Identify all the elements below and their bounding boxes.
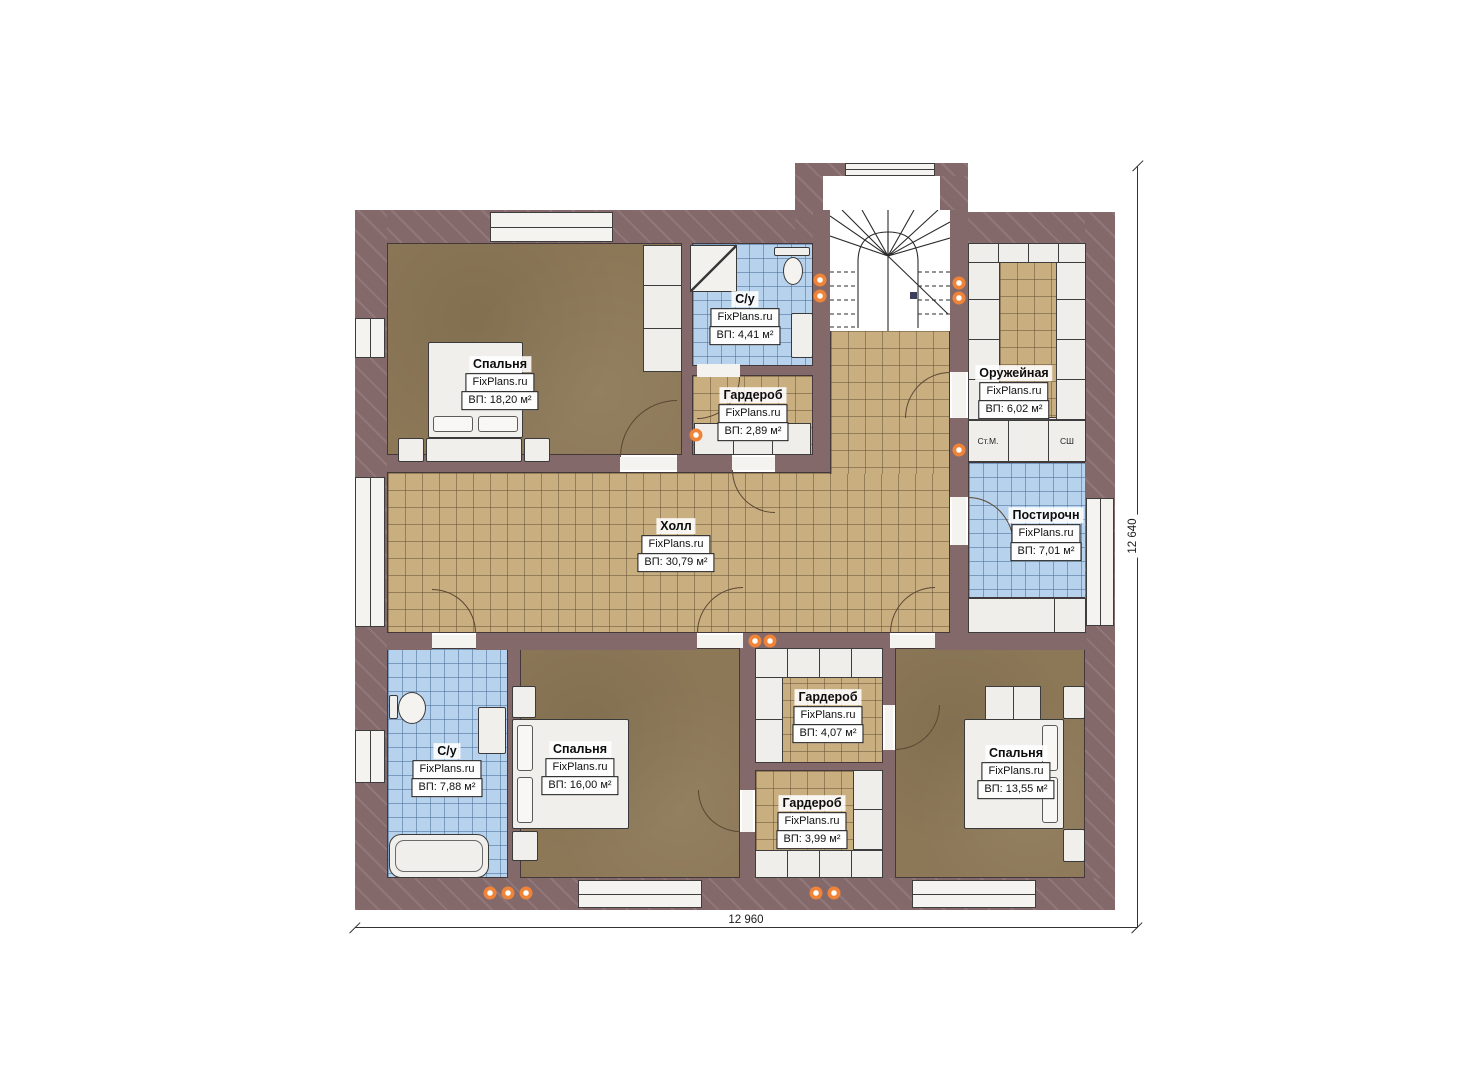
laundry-bottom-cabinet — [968, 598, 1055, 633]
room-name: Гардероб — [794, 689, 861, 705]
downlight — [502, 887, 515, 900]
room-area: ВП: 6,02 м² — [978, 400, 1049, 419]
nightstand — [398, 438, 424, 462]
window-bottom-bedroomBC — [578, 880, 702, 908]
cabinet-armory-top — [968, 243, 1086, 263]
toilet-bowl — [783, 257, 803, 285]
room-name: Холл — [656, 518, 695, 534]
window-left-upper — [355, 318, 385, 358]
room-name: Постирочн — [1009, 507, 1084, 523]
toilet-tank — [774, 247, 810, 256]
nightstand — [512, 831, 538, 861]
room-name: Спальня — [985, 745, 1047, 761]
nightstand — [1063, 686, 1085, 719]
downlight — [764, 635, 777, 648]
room-label-bedroom-bottom-center: Спальня FixPlans.ru ВП: 16,00 м² — [541, 741, 618, 795]
room-name: Спальня — [469, 356, 531, 372]
room-area: ВП: 16,00 м² — [541, 776, 618, 795]
floor-plan-canvas: Спальня FixPlans.ru ВП: 18,20 м² С/у Fix… — [0, 0, 1473, 1080]
room-area: ВП: 18,20 м² — [461, 391, 538, 410]
room-name: С/у — [731, 291, 758, 307]
room-name: Оружейная — [975, 365, 1052, 381]
window-bottom-bedroomBR — [912, 880, 1036, 908]
wall-bedroomTL-bottom-b — [677, 455, 690, 472]
pillow — [433, 416, 473, 432]
door-wardrobe-top — [732, 457, 775, 470]
room-area: ВП: 3,99 м² — [776, 830, 847, 849]
cabinet-armory-right — [1056, 262, 1086, 420]
laundry-mid-cabinet — [1008, 420, 1049, 462]
dimension-height-text: 12 640 — [1127, 514, 1139, 557]
watermark: FixPlans.ru — [545, 758, 614, 777]
door-laundry — [952, 497, 966, 545]
nightstand — [512, 686, 536, 718]
wall-wardrobeTop-bottom-b — [775, 455, 830, 472]
closet-bedroomTL — [643, 245, 682, 372]
wall-bedBC-right-a — [740, 648, 755, 790]
watermark: FixPlans.ru — [718, 404, 787, 423]
watermark: FixPlans.ru — [465, 373, 534, 392]
nightstand — [1063, 829, 1085, 862]
door-wardrobe-upper — [885, 705, 893, 750]
door-wardrobe-lower — [742, 790, 753, 832]
watermark: FixPlans.ru — [641, 535, 710, 554]
room-area: ВП: 4,07 м² — [792, 724, 863, 743]
room-label-bedroom-bottom-right: Спальня FixPlans.ru ВП: 13,55 м² — [977, 745, 1054, 799]
door-bathroom-bottom — [432, 635, 476, 648]
room-label-bedroom-top-left: Спальня FixPlans.ru ВП: 18,20 м² — [461, 356, 538, 410]
wall-wardrobes-right-a — [883, 648, 895, 705]
room-name: Спальня — [549, 741, 611, 757]
room-name: С/у — [433, 743, 460, 759]
window-left-hall — [355, 477, 385, 627]
staircase — [830, 210, 950, 331]
pillow — [517, 777, 533, 823]
downlight — [814, 274, 827, 287]
wall-bedBC-right-b — [740, 832, 755, 878]
window-stair-bay — [845, 163, 935, 176]
room-name: Гардероб — [778, 795, 845, 811]
room-area: ВП: 7,01 м² — [1010, 542, 1081, 561]
door-bathroom-top — [697, 364, 740, 377]
watermark: FixPlans.ru — [1011, 524, 1080, 543]
room-label-bathroom-bottom: С/у FixPlans.ru ВП: 7,88 м² — [411, 743, 482, 797]
downlight — [690, 429, 703, 442]
toilet-tank — [389, 695, 398, 719]
room-label-armory: Оружейная FixPlans.ru ВП: 6,02 м² — [975, 365, 1052, 419]
room-label-bathroom-top: С/у FixPlans.ru ВП: 4,41 м² — [709, 291, 780, 345]
washing-machine-label: Ст.М. — [978, 436, 999, 446]
downlight — [953, 277, 966, 290]
door-armory — [952, 372, 966, 418]
wall-stairs-left — [813, 210, 830, 458]
downlight — [484, 887, 497, 900]
watermark: FixPlans.ru — [981, 762, 1050, 781]
cabinet-wardrobeLow-right — [853, 770, 883, 850]
room-label-wardrobe-mid-upper: Гардероб FixPlans.ru ВП: 4,07 м² — [792, 689, 863, 743]
dimension-width-text: 12 960 — [724, 914, 767, 926]
cabinet-wardrobeUp-left — [755, 677, 783, 763]
watermark: FixPlans.ru — [412, 760, 481, 779]
door-bedroomBR — [890, 635, 935, 648]
wall-hall-laundry-a — [950, 462, 968, 497]
wall-hall-bottom-4 — [935, 633, 1087, 650]
cabinet-wardrobeLow-bottom — [755, 850, 883, 878]
room-label-hall: Холл FixPlans.ru ВП: 30,79 м² — [637, 518, 714, 572]
drying-cabinet-label: СШ — [1060, 436, 1074, 446]
downlight — [953, 444, 966, 457]
bathroom-cabinet — [791, 313, 813, 358]
nightstand — [524, 438, 550, 462]
watermark: FixPlans.ru — [793, 706, 862, 725]
wall-hall-laundry-b — [950, 545, 968, 633]
window-left-bathroom — [355, 730, 385, 783]
door-bedroomBC — [697, 635, 743, 648]
room-name: Гардероб — [719, 387, 786, 403]
downlight — [810, 887, 823, 900]
downlight — [814, 290, 827, 303]
pillow — [517, 725, 533, 771]
downlight — [520, 887, 533, 900]
pillow — [478, 416, 518, 432]
downlight — [828, 887, 841, 900]
wall-bath-wardrobe-divider-b — [740, 366, 813, 375]
shower — [690, 245, 737, 292]
toilet-bowl — [398, 692, 426, 724]
bathtub — [389, 834, 489, 878]
watermark: FixPlans.ru — [710, 308, 779, 327]
dimension-line-bottom — [355, 927, 1138, 928]
watermark: FixPlans.ru — [979, 382, 1048, 401]
room-label-wardrobe-top: Гардероб FixPlans.ru ВП: 2,89 м² — [717, 387, 788, 441]
wall-wardrobes-right-b — [883, 750, 895, 878]
room-label-wardrobe-mid-lower: Гардероб FixPlans.ru ВП: 3,99 м² — [776, 795, 847, 849]
room-area: ВП: 4,41 м² — [709, 326, 780, 345]
window-top-bedroom — [490, 212, 613, 242]
laundry-bottom-cabinet-2 — [1054, 598, 1086, 633]
wall-hall-bottom-1 — [387, 633, 432, 650]
room-area: ВП: 30,79 м² — [637, 553, 714, 572]
door-bedroomTL — [620, 457, 677, 470]
room-area: ВП: 13,55 м² — [977, 780, 1054, 799]
room-area: ВП: 7,88 м² — [411, 778, 482, 797]
room-area: ВП: 2,89 м² — [717, 422, 788, 441]
cabinet-wardrobeUp-top — [755, 648, 883, 678]
room-label-laundry: Постирочн FixPlans.ru ВП: 7,01 м² — [1009, 507, 1084, 561]
wall-wardrobeTop-bottom-a — [690, 455, 732, 472]
bed-headboard-bench — [426, 438, 522, 462]
wall-wardrobes-divider — [755, 763, 883, 770]
downlight — [749, 635, 762, 648]
downlight — [953, 292, 966, 305]
watermark: FixPlans.ru — [777, 812, 846, 831]
window-right-laundry — [1086, 498, 1114, 626]
